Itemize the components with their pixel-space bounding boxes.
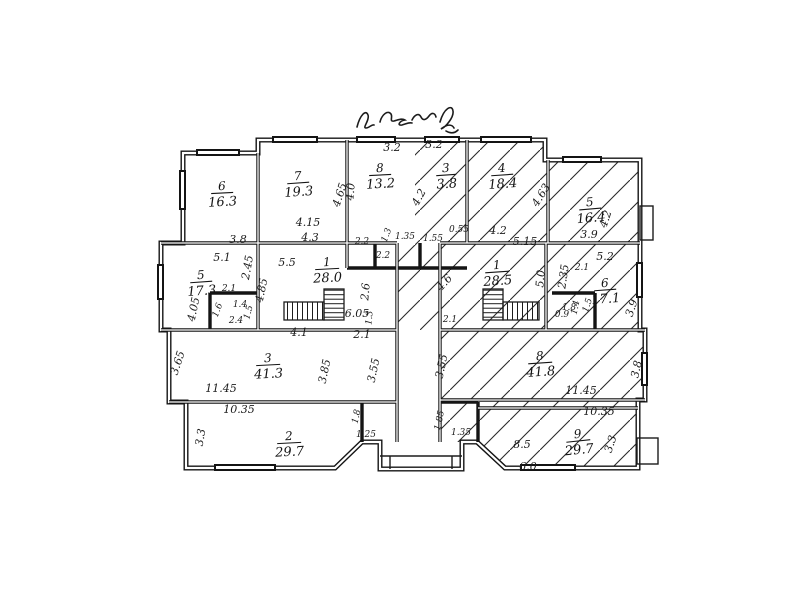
room-area: 16.3 [208, 194, 238, 210]
room-label-1-left: 128.0 [311, 254, 343, 287]
room-label-2: 229.7 [273, 428, 305, 461]
dim-label: 1.35 [395, 232, 415, 242]
dim-label: 5.0 [533, 269, 547, 288]
dim-label: 1.3 [364, 310, 375, 325]
dim-label: 4.1 [289, 326, 308, 339]
floor-plan-page: 616.3 719.3 813.2 33.8 418.4 516.4 517.3… [0, 0, 800, 600]
dim-label: 3.3 [193, 428, 209, 447]
dim-label: 4.15 [295, 216, 321, 229]
staircase-left [284, 289, 344, 320]
dim-label: 2.1 [352, 328, 371, 341]
room-area: 28.5 [482, 273, 513, 290]
room-label-5-left: 517.3 [186, 267, 217, 300]
room-number: 3 [264, 351, 273, 365]
dim-label: 2.45 [239, 254, 256, 281]
handwritten-annotation [357, 108, 458, 133]
dim-label: 10.35 [223, 403, 255, 416]
room-label-7: 719.3 [283, 168, 314, 201]
room-number: 4 [496, 161, 506, 176]
dim-label: 5.15 [513, 235, 538, 248]
dim-label: 1.55 [423, 234, 443, 244]
dim-label: 0.55 [449, 225, 469, 235]
room-area: 19.3 [284, 184, 314, 201]
room-area: 28.0 [312, 270, 343, 287]
dim-label: 4.05 [184, 296, 202, 324]
dim-label: 2.1 [221, 284, 236, 294]
dim-label: 2.4 [228, 316, 244, 326]
dim-label: 6.0 [519, 460, 537, 473]
dim-label: 1.35 [451, 428, 471, 438]
room-number: 6 [600, 276, 609, 291]
room-area: 29.7 [563, 441, 595, 459]
room-number: 1 [323, 255, 331, 269]
dim-label: 2.1 [574, 263, 589, 273]
room-number: 1 [492, 258, 501, 272]
dim-label: 5.1 [213, 251, 231, 264]
dim-label: 2.6 [358, 282, 373, 302]
room-number: 2 [284, 429, 293, 443]
dim-label: 3.9 [580, 228, 598, 241]
room-number: 3 [441, 161, 450, 176]
dim-label: 3.85 [316, 358, 334, 385]
room-label-6-left: 616.3 [207, 178, 238, 210]
room-label-8-left: 813.2 [365, 160, 396, 192]
dim-label: 1.25 [356, 430, 376, 440]
room-area: 13.2 [366, 176, 396, 192]
dim-label: 4.2 [488, 224, 507, 237]
dim-label: 2.2 [354, 237, 370, 247]
dim-label: 3.2 [425, 138, 443, 151]
dim-label: 2.1 [442, 315, 457, 325]
dim-label: 3.2 [383, 141, 401, 154]
room-area: 41.3 [253, 366, 284, 383]
room-number: 8 [376, 161, 385, 175]
dim-label: 1.6 [211, 302, 225, 319]
room-number: 5 [585, 195, 594, 210]
room-area: 3.8 [436, 176, 458, 192]
dim-label: 5.5 [278, 256, 296, 269]
room-number: 7 [293, 169, 302, 184]
dim-label: 5.2 [596, 250, 614, 263]
room-number: 5 [196, 268, 205, 282]
dim-label: 11.45 [565, 384, 597, 397]
room-area: 41.8 [525, 364, 556, 381]
room-area: 29.7 [274, 444, 305, 461]
dim-label: 3.8 [229, 233, 247, 246]
room-number: 6 [218, 179, 227, 193]
room-area: 17.1 [591, 291, 621, 308]
dim-label: 11.45 [205, 382, 237, 395]
dim-label: 8.5 [513, 438, 531, 451]
floor-plan-canvas: 616.3 719.3 813.2 33.8 418.4 516.4 517.3… [0, 0, 800, 600]
dim-label: 4.3 [300, 231, 319, 244]
dim-label: 3.55 [365, 357, 383, 384]
dim-label: 10.35 [583, 405, 615, 418]
dim-label: 4.85 [252, 277, 270, 305]
dim-label: 2.2 [375, 251, 391, 261]
room-label-3-left: 341.3 [252, 350, 284, 383]
room-number: 8 [535, 349, 544, 364]
dim-label: 1.3 [380, 227, 394, 244]
dim-label: 0.9 [555, 310, 570, 320]
dim-label: 4.0 [343, 182, 358, 202]
room-area: 18.4 [488, 176, 518, 193]
